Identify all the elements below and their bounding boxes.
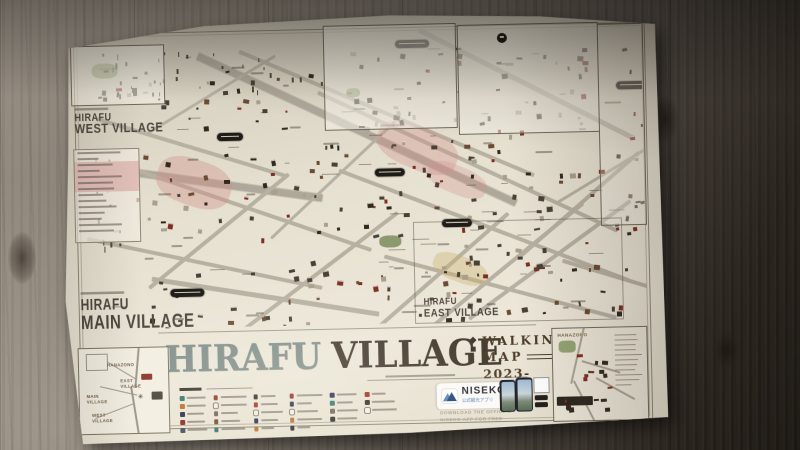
legend-column: [289, 393, 323, 430]
building-icon: [198, 314, 203, 318]
legend-swatch-icon: [365, 400, 370, 405]
hanazono-green-area: [559, 340, 576, 352]
building-icon: [570, 173, 577, 179]
map-text-bar: [144, 258, 153, 260]
legend-swatch-icon: [213, 395, 218, 400]
legend-swatch-icon: [289, 394, 294, 399]
building-icon: [604, 408, 609, 413]
legend-swatch-icon: [213, 403, 218, 408]
legend-entry: [330, 408, 358, 413]
legend-label-bar: [337, 394, 357, 396]
building-icon: [277, 77, 280, 81]
legend-entry: [214, 427, 247, 432]
legend-entry: [180, 419, 207, 424]
overview-lodge-icon: [141, 374, 152, 380]
legend-swatch-icon: [330, 417, 335, 422]
tree-icon: [178, 52, 180, 57]
building-icon: [183, 205, 189, 212]
building-icon: [261, 238, 264, 243]
legend-swatch-icon: [289, 402, 294, 407]
main-village-label: HIRAFU MAIN VILLAGE: [80, 290, 194, 334]
legend-label-bar: [187, 405, 206, 407]
hanazono-list-line: [615, 369, 635, 371]
legend-label-bar: [372, 401, 395, 403]
map-text-bar: [290, 127, 301, 129]
building-icon: [310, 169, 315, 174]
hanazono-list-line: [615, 349, 636, 351]
overview-label-main-village: MAIN VILLAGE: [87, 395, 108, 406]
title-hirafu: HIRAFU: [164, 335, 321, 382]
map-text-bar: [228, 146, 239, 148]
building-icon: [431, 145, 437, 149]
main-village-jp-caption: [80, 291, 124, 294]
tree-icon: [292, 78, 294, 83]
legend-label-bar: [187, 429, 207, 431]
map-text-bar: [171, 245, 182, 247]
building-icon: [332, 162, 338, 167]
legend-swatch-icon: [290, 410, 295, 415]
legend-swatch-icon: [330, 401, 335, 406]
legend-label-bar: [187, 397, 206, 399]
building-icon: [204, 202, 207, 205]
building-icon: [529, 186, 534, 189]
building-icon: [373, 286, 379, 293]
tree-icon: [213, 53, 215, 57]
building-icon: [308, 74, 313, 78]
title-divider-icons: [470, 338, 475, 352]
map-text-bar: [158, 193, 171, 195]
west-village-label: HIRAFU WEST VILLAGE: [74, 106, 163, 138]
building-icon: [281, 127, 287, 130]
building-icon: [525, 171, 530, 175]
building-icon: [228, 320, 234, 324]
building-icon: [337, 280, 343, 286]
directory-row: [76, 227, 140, 234]
far-right-inset-panel: [597, 23, 647, 226]
building-icon: [404, 214, 410, 218]
building-icon: [451, 140, 454, 144]
legend-label-bar: [296, 394, 323, 396]
legend-entry: [330, 416, 358, 421]
building-icon: [337, 227, 341, 231]
building-icon: [256, 99, 261, 104]
legend-label-bar: [220, 396, 246, 398]
map-text-bar: [481, 211, 493, 213]
building-icon: [223, 91, 229, 96]
building-icon: [402, 141, 405, 146]
building-icon: [294, 276, 299, 281]
legend-entry: [180, 395, 207, 400]
legend-header-title-bar: [179, 388, 201, 391]
map-legend: [180, 391, 398, 432]
building-icon: [386, 206, 392, 210]
legend-swatch-icon: [290, 426, 295, 431]
app-qr-code: [534, 378, 548, 392]
building-icon: [388, 295, 390, 300]
legend-swatch-icon: [254, 418, 259, 423]
building-icon: [306, 322, 310, 325]
legend-entry: [254, 394, 283, 399]
legend-swatch-icon: [214, 419, 219, 424]
map-road: [115, 161, 372, 252]
map-text-bar: [358, 164, 371, 166]
building-icon: [210, 81, 215, 85]
tree-icon: [104, 247, 106, 253]
tree-icon: [186, 55, 188, 59]
legend-label-bar: [220, 404, 246, 406]
map-text-bar: [246, 194, 256, 196]
legend-swatch-icon: [365, 408, 370, 413]
legend-label-bar: [261, 403, 278, 405]
building-icon: [559, 180, 563, 183]
legend-label-bar: [261, 419, 278, 421]
tree-icon: [300, 77, 302, 82]
map-text-bar: [379, 261, 389, 263]
west-village-jp-caption: [74, 108, 108, 111]
building-icon: [579, 401, 582, 406]
legend-entry: [365, 407, 397, 412]
legend-label-bar: [261, 395, 276, 397]
building-icon: [307, 277, 313, 282]
legend-swatch-icon: [330, 409, 335, 414]
legend-swatch-icon: [254, 402, 259, 407]
building-icon: [607, 386, 612, 389]
building-icon: [512, 194, 517, 200]
building-icon: [584, 377, 588, 381]
building-icon: [143, 155, 149, 161]
overview-label-west-village: WEST VILLAGE: [92, 414, 113, 425]
legend-entry: [290, 417, 324, 422]
legend-entry: [213, 403, 246, 408]
app-store-badge: [535, 395, 548, 400]
legend-label-bar: [221, 428, 245, 430]
top-right-inset-panel: [457, 22, 600, 135]
building-icon: [147, 218, 150, 221]
building-icon: [590, 371, 594, 373]
building-icon: [286, 215, 289, 218]
building-icon: [238, 107, 242, 110]
title-village: VILLAGE: [331, 331, 503, 378]
building-icon: [255, 120, 258, 122]
building-icon: [289, 317, 293, 322]
tree-icon: [258, 58, 260, 62]
legend-entry: [254, 426, 283, 431]
building-icon: [497, 150, 500, 154]
legend-entry: [254, 410, 283, 415]
hanazono-list-line: [615, 384, 631, 386]
hanazono-list-line: [615, 374, 642, 376]
village-overview-inset: HANAZONO EAST VILLAGE MAIN VILLAGE WEST …: [78, 346, 171, 435]
building-icon: [387, 287, 391, 292]
overview-dark-box: [152, 391, 163, 399]
diamond-icon: [469, 337, 476, 344]
hanazono-dark-label-box: [557, 396, 593, 406]
building-icon: [578, 173, 581, 178]
map-pink-zone: [423, 155, 491, 205]
map-text-bar: [183, 237, 193, 239]
tree-icon: [111, 242, 113, 247]
building-icon: [311, 261, 316, 266]
legend-swatch-icon: [290, 418, 295, 423]
legend-label-bar: [221, 420, 240, 422]
building-icon: [316, 297, 320, 301]
building-icon: [167, 223, 173, 230]
legend-entry: [365, 391, 397, 396]
wood-knot-left: [8, 232, 36, 284]
building-icon: [251, 158, 257, 161]
map-text-bar: [246, 315, 259, 317]
overview-hanazono-box: [86, 354, 108, 371]
building-icon: [632, 227, 637, 231]
building-icon: [625, 268, 629, 271]
legend-entry: [254, 418, 283, 423]
map-text-bar: [210, 269, 225, 271]
building-icon: [319, 175, 322, 179]
building-icon: [325, 146, 328, 150]
building-icon: [289, 269, 295, 273]
building-icon: [324, 222, 328, 226]
square-icon: [471, 347, 476, 352]
legend-label-bar: [187, 413, 204, 415]
legend-column: [365, 391, 398, 428]
niseko-app-card: NISEKO 公式観光アプリ: [436, 382, 505, 409]
hanazono-list-line: [615, 379, 639, 381]
overview-label-hanazono: HANAZONO: [107, 363, 134, 369]
tree-icon: [120, 243, 122, 246]
building-icon: [195, 274, 201, 278]
legend-column: [330, 392, 359, 429]
building-icon: [367, 202, 373, 208]
building-icon: [161, 228, 167, 232]
building-icon: [271, 189, 278, 194]
tree-icon: [270, 73, 272, 79]
main-village-line2: MAIN VILLAGE: [81, 311, 195, 334]
legend-label-bar: [221, 412, 239, 414]
building-icon: [152, 200, 158, 205]
map-text-bar: [177, 128, 189, 130]
building-icon: [231, 306, 237, 311]
legend-label-bar: [261, 411, 283, 413]
niseko-mountain-icon: [442, 389, 458, 403]
building-icon: [285, 111, 288, 114]
building-icon: [317, 231, 321, 234]
poster-wrapper: HIRAFU WEST VILLAGE HIRAFU MAIN VILLAGE …: [59, 10, 668, 445]
legend-swatch-icon: [180, 412, 185, 417]
top-center-inset-panel: [323, 23, 458, 131]
legend-entry: [289, 401, 323, 406]
building-icon: [204, 100, 209, 105]
building-icon: [423, 168, 426, 173]
map-text-bar: [535, 151, 552, 153]
legend-swatch-icon: [180, 404, 185, 409]
overview-junction-marker: ✳: [138, 394, 144, 401]
map-label-pill: [375, 168, 405, 177]
building-icon: [364, 224, 369, 229]
building-icon: [601, 361, 607, 366]
building-icon: [560, 174, 563, 179]
map-text-bar: [483, 143, 492, 145]
legend-entry: [180, 427, 207, 432]
building-icon: [491, 158, 494, 162]
building-icon: [426, 173, 431, 178]
building-icon: [271, 159, 276, 166]
building-icon: [323, 271, 330, 278]
map-text-bar: [389, 249, 406, 251]
legend-label-bar: [372, 393, 386, 395]
photo-of-map-poster: { "poster": { "title": { "part1": "HIRAF…: [0, 0, 800, 450]
building-icon: [590, 194, 594, 197]
map-text-bar: [283, 85, 290, 87]
map-text-bar: [188, 159, 199, 161]
building-icon: [243, 99, 250, 104]
building-icon: [159, 280, 163, 285]
building-icon: [199, 87, 202, 89]
legend-swatch-icon: [254, 410, 259, 415]
tree-icon: [176, 77, 178, 82]
legend-entry: [289, 393, 323, 398]
legend-swatch-icon: [365, 392, 370, 397]
building-icon: [293, 185, 299, 191]
subtitle-map: MAP: [483, 350, 524, 365]
east-village-line2: EAST VILLAGE: [424, 306, 499, 320]
building-icon: [399, 191, 402, 197]
legend-label-bar: [297, 410, 318, 412]
legend-label-bar: [297, 403, 312, 405]
legend-label-bar: [297, 418, 322, 420]
building-icon: [317, 161, 320, 165]
legend-entry: [290, 409, 324, 414]
overview-label-east-village: EAST VILLAGE: [120, 379, 141, 390]
subtitle-walking: WALKING: [482, 333, 558, 349]
legend-label-bar: [187, 421, 205, 423]
building-icon: [594, 361, 598, 365]
building-icon: [339, 207, 342, 212]
building-icon: [262, 183, 267, 189]
tree-icon: [242, 64, 244, 67]
building-icon: [224, 180, 230, 184]
tree-icon: [222, 66, 224, 69]
niseko-brand-subtext: 公式観光アプリ: [462, 398, 495, 403]
legend-entry: [330, 392, 358, 397]
legend-entry: [180, 403, 207, 408]
legend-entry: [213, 395, 246, 400]
building-icon: [177, 192, 180, 196]
building-icon: [203, 126, 208, 132]
play-store-badge: [535, 402, 548, 407]
legend-entry: [180, 411, 207, 416]
legend-label-bar: [297, 427, 310, 429]
legend-swatch-icon: [214, 427, 219, 432]
building-icon: [381, 276, 386, 281]
legend-column: [254, 394, 284, 431]
building-icon: [289, 300, 292, 306]
legend-label-bar: [261, 427, 275, 429]
building-icon: [218, 218, 221, 224]
hanazono-list-line: [615, 364, 637, 366]
map-text-bar: [388, 163, 397, 165]
building-icon: [509, 134, 512, 140]
map-text-bar: [190, 117, 200, 119]
hanazono-list-line: [615, 339, 638, 341]
app-phone-screenshot-2: [515, 377, 533, 411]
legend-entry: [254, 402, 283, 407]
legend-label-bar: [337, 402, 353, 404]
building-icon: [471, 199, 476, 203]
map-text-bar: [285, 162, 290, 164]
left-directory-panel: [73, 148, 141, 243]
legend-entry: [365, 399, 397, 404]
building-icon: [271, 173, 275, 176]
legend-swatch-icon: [254, 394, 259, 399]
building-icon: [627, 232, 631, 236]
building-icon: [569, 407, 574, 412]
building-icon: [337, 145, 339, 151]
app-phone-screenshot-1: [499, 380, 516, 412]
legend-header-note-bar: [206, 387, 252, 390]
building-icon: [344, 153, 348, 157]
building-icon: [197, 229, 201, 235]
building-icon: [464, 144, 470, 148]
legend-label-bar: [338, 418, 357, 420]
legend-swatch-icon: [330, 393, 335, 398]
hanazono-list-line: [615, 359, 638, 361]
legend-entry: [214, 419, 247, 424]
building-icon: [251, 80, 255, 85]
building-icon: [603, 373, 607, 378]
hanazono-list-line: [615, 354, 642, 356]
legend-label-bar: [337, 410, 358, 412]
building-icon: [373, 234, 380, 238]
legend-entry: [330, 400, 358, 405]
building-icon: [434, 205, 439, 209]
building-icon: [601, 398, 607, 401]
building-icon: [165, 162, 171, 168]
building-icon: [546, 206, 552, 212]
building-icon: [502, 175, 506, 180]
legend-entry: [290, 425, 324, 430]
map-text-bar: [501, 183, 508, 185]
east-village-label: HIRAFU EAST VILLAGE: [424, 296, 500, 320]
building-icon: [467, 215, 471, 218]
hanazono-list-line: [614, 334, 636, 336]
hanazono-list-line: [615, 344, 636, 346]
building-icon: [244, 197, 248, 201]
building-icon: [161, 221, 166, 223]
legend-label-bar: [372, 409, 397, 411]
building-icon: [576, 354, 582, 358]
building-icon: [250, 216, 254, 220]
tree-icon: [257, 91, 259, 96]
map-label-pill: [217, 133, 243, 142]
west-village-inset-panel: [70, 44, 165, 106]
building-icon: [330, 145, 334, 149]
tree-icon: [252, 87, 254, 93]
building-icon: [493, 211, 497, 215]
tree-icon: [263, 67, 265, 70]
west-village-line2: WEST VILLAGE: [75, 122, 164, 138]
hanazono-inset-map: HANAZONO: [551, 326, 649, 422]
building-icon: [196, 107, 198, 109]
building-icon: [236, 89, 239, 94]
legend-swatch-icon: [180, 420, 185, 425]
hirafu-village-map-poster: HIRAFU WEST VILLAGE HIRAFU MAIN VILLAGE …: [59, 10, 668, 445]
building-icon: [262, 317, 267, 322]
map-text-bar: [393, 267, 403, 269]
building-icon: [489, 144, 496, 149]
tree-icon: [177, 69, 179, 74]
legend-swatch-icon: [254, 426, 259, 431]
legend-entry: [214, 411, 247, 416]
